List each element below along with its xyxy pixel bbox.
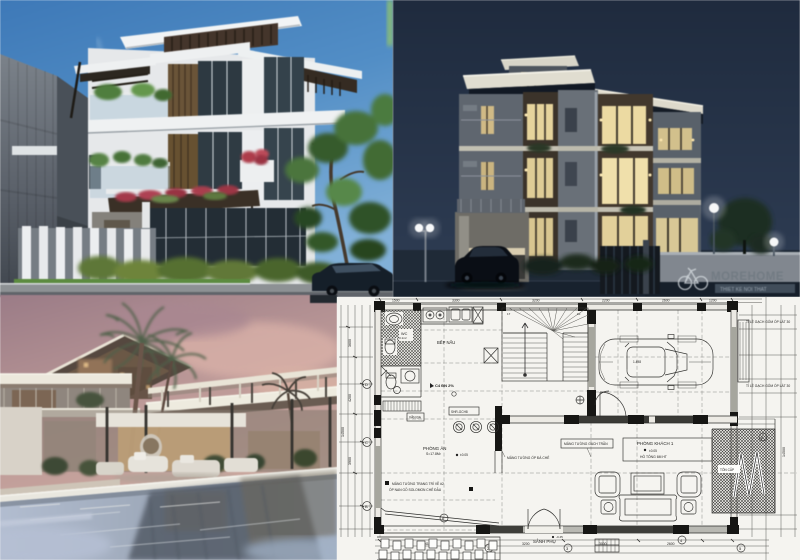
- svg-text:6: 6: [442, 517, 444, 521]
- svg-text:3300: 3300: [452, 299, 460, 303]
- svg-text:17: 17: [507, 312, 511, 316]
- svg-text:TỈ LỆ GẠCH GỐM ỐP LÁT 30: TỈ LỆ GẠCH GỐM ỐP LÁT 30: [746, 319, 790, 324]
- svg-text:3900: 3900: [348, 457, 352, 465]
- svg-text:MẢNG TƯỜNG ỐP ĐÁ CHẺ: MẢNG TƯỜNG ỐP ĐÁ CHẺ: [507, 455, 550, 460]
- svg-text:ỐP NAN GỖ SOLOMON CHẺ ĐẦU: ỐP NAN GỖ SOLOMON CHẺ ĐẦU: [389, 487, 442, 492]
- svg-text:TỈ LỆ GẠCH GỐM ỐP LÁT 30: TỈ LỆ GẠCH GỐM ỐP LÁT 30: [746, 383, 790, 388]
- svg-text:2600: 2600: [667, 542, 675, 546]
- svg-text:MẢNG TƯỜNG TRANG TRÍ VỀ #2: MẢNG TƯỜNG TRANG TRÍ VỀ #2: [392, 481, 444, 486]
- svg-text:±0.05: ±0.05: [649, 449, 657, 453]
- svg-text:BẾP NẤU: BẾP NẤU: [437, 340, 455, 345]
- svg-text:S=17.8M²: S=17.8M²: [426, 452, 442, 456]
- svg-text:±0.05: ±0.05: [460, 453, 468, 457]
- svg-text:PHÒNG KHÁCH 1: PHÒNG KHÁCH 1: [637, 441, 674, 446]
- svg-text:D: D: [365, 382, 368, 387]
- svg-text:3200: 3200: [522, 542, 530, 546]
- svg-text:MOREHOME: MOREHOME: [711, 271, 784, 283]
- svg-text:MẢNG TƯỜNG GẠCH TRẦN: MẢNG TƯỜNG GẠCH TRẦN: [564, 441, 608, 446]
- svg-text:14500: 14500: [782, 447, 786, 457]
- svg-text:C: C: [365, 440, 368, 445]
- svg-text:C4 ĐN 2%: C4 ĐN 2%: [435, 383, 454, 388]
- svg-text:10: 10: [577, 312, 581, 316]
- svg-text:14500: 14500: [341, 427, 345, 437]
- svg-text:THIET KE NOI THAT: THIET KE NOI THAT: [720, 287, 767, 293]
- svg-text:1200: 1200: [709, 299, 717, 303]
- svg-text:SẢNH PHỤ: SẢNH PHỤ: [533, 539, 556, 544]
- svg-text:SHR-GCH8: SHR-GCH8: [451, 410, 468, 414]
- svg-text:B: B: [365, 504, 368, 509]
- svg-text:2600: 2600: [662, 299, 670, 303]
- svg-text:TÔN CẤP: TÔN CẤP: [720, 467, 734, 472]
- svg-text:3.1m²: 3.1m²: [399, 336, 407, 340]
- svg-text:4200: 4200: [348, 394, 352, 402]
- svg-text:3200: 3200: [532, 299, 540, 303]
- svg-text:3600: 3600: [348, 339, 352, 347]
- svg-text:1500: 1500: [392, 299, 400, 303]
- svg-text:1.498: 1.498: [633, 360, 641, 364]
- svg-text:VĂN ĐA: VĂN ĐA: [409, 416, 422, 420]
- svg-text:PHÒNG ĂN: PHÒNG ĂN: [423, 446, 446, 451]
- svg-text:2200: 2200: [602, 299, 610, 303]
- svg-text:-0.45: -0.45: [556, 535, 563, 539]
- svg-text:HỒ TÔNG 6M HT: HỒ TÔNG 6M HT: [640, 454, 667, 459]
